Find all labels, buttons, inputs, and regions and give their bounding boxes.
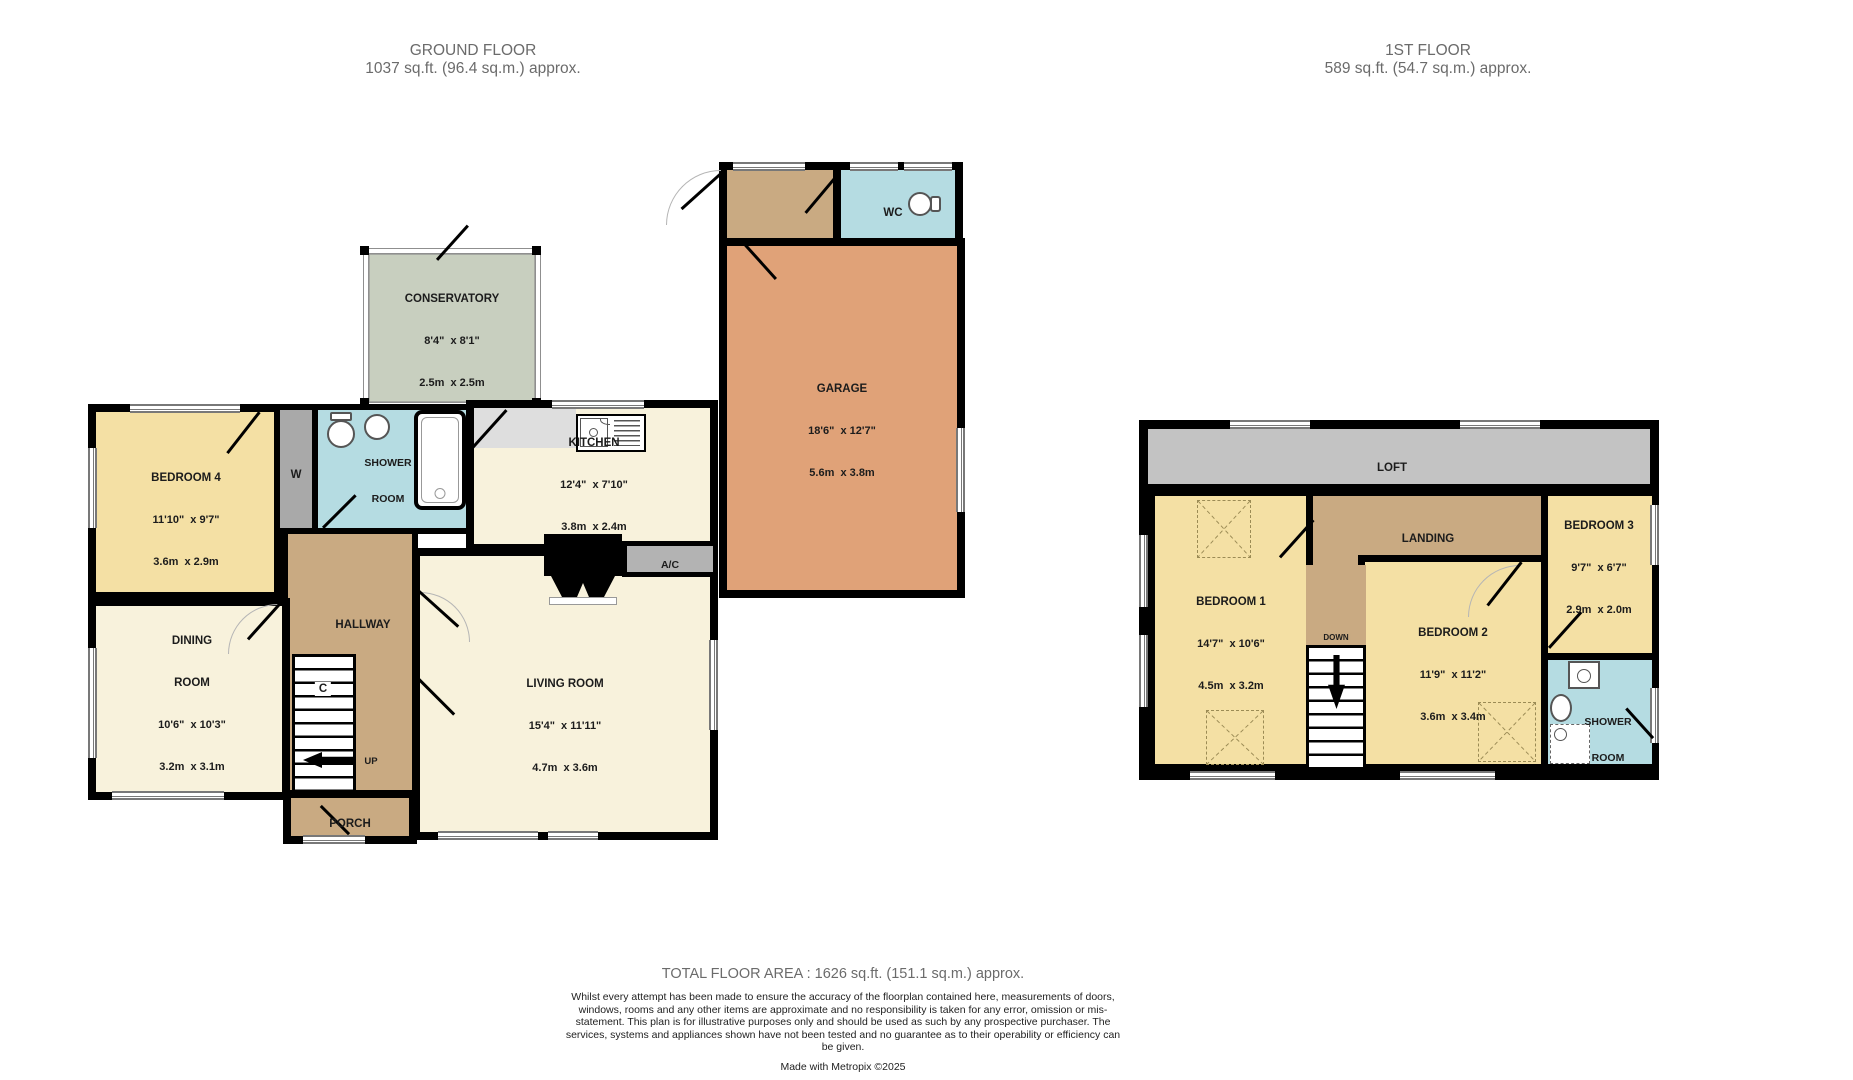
- label-landing: LANDING: [1402, 504, 1454, 560]
- first-floor-area: 589 sq.ft. (54.7 sq.m.) approx.: [1325, 60, 1532, 77]
- window: [1400, 771, 1495, 780]
- label-bedroom4: BEDROOM 4 11'10" x 9'7" 3.6m x 2.9m: [151, 443, 221, 583]
- label-shower-1f: SHOWER ROOM: [1584, 692, 1631, 776]
- label-bedroom1: BEDROOM 1 14'7" x 10'6" 4.5m x 3.2m: [1196, 567, 1266, 707]
- label-porch: PORCH: [329, 789, 371, 845]
- label-hallway: HALLWAY: [335, 590, 390, 646]
- floorplan-page: { "ground_floor": { "header_title": "GRO…: [0, 0, 1853, 1080]
- label-loft: LOFT: [1377, 433, 1407, 489]
- window: [1190, 771, 1275, 780]
- ground-floor-title: GROUND FLOOR: [410, 42, 537, 59]
- label-garage: GARAGE 18'6" x 12'7" 5.6m x 3.8m: [808, 354, 876, 494]
- label-ac: A/C: [661, 535, 679, 583]
- window: [88, 648, 97, 758]
- window: [88, 448, 97, 528]
- window: [130, 404, 240, 413]
- window: [1460, 420, 1540, 429]
- room-rear-lobby: [719, 162, 841, 246]
- total-floor-area: TOTAL FLOOR AREA : 1626 sq.ft. (151.1 sq…: [243, 966, 1443, 982]
- ground-floor-area: 1037 sq.ft. (96.4 sq.m.) approx.: [365, 60, 580, 77]
- label-bedroom3: BEDROOM 3 9'7" x 6'7" 2.9m x 2.0m: [1564, 491, 1634, 631]
- label-stairs-cupboard: C: [315, 654, 331, 710]
- toilet-icon: [908, 192, 932, 216]
- label-living: LIVING ROOM 15'4" x 11'11" 4.7m x 3.6m: [526, 649, 603, 789]
- label-bedroom2: BEDROOM 2 11'9" x 11'2" 3.6m x 3.4m: [1418, 598, 1488, 738]
- window: [1230, 420, 1310, 429]
- window: [904, 162, 952, 171]
- window: [112, 791, 224, 800]
- label-shower-gf: SHOWER ROOM: [364, 433, 411, 517]
- fireplace-hearth-stone: [549, 597, 617, 605]
- toilet-icon: [1550, 694, 1572, 722]
- label-conservatory: CONSERVATORY 8'4" x 8'1" 2.5m x 2.5m: [405, 264, 500, 404]
- credit-text: Made with Metropix ©2025: [563, 1061, 1123, 1073]
- window: [733, 162, 805, 171]
- label-stairs-down: DOWN: [1321, 615, 1350, 651]
- label-wardrobe: W: [291, 440, 302, 496]
- toilet-icon: [327, 420, 355, 448]
- storage-box-icon: [1197, 500, 1251, 558]
- window: [1139, 635, 1148, 707]
- storage-box-icon: [1206, 710, 1264, 765]
- window: [1650, 505, 1659, 565]
- label-wc: WC: [883, 178, 902, 234]
- first-floor-title: 1ST FLOOR: [1385, 42, 1471, 59]
- first-floor-header: 1ST FLOOR 589 sq.ft. (54.7 sq.m.) approx…: [1128, 42, 1728, 78]
- window: [548, 831, 598, 840]
- shower-cubicle-icon: [414, 410, 466, 510]
- label-stairs-up: UP: [364, 739, 377, 775]
- window: [1139, 535, 1148, 607]
- label-kitchen: KITCHEN 12'4" x 7'10" 3.8m x 2.4m: [560, 408, 628, 548]
- toilet-cistern-icon: [930, 196, 941, 212]
- ground-floor-header: GROUND FLOOR 1037 sq.ft. (96.4 sq.m.) ap…: [173, 42, 773, 78]
- label-dining: DINING ROOM 10'6" x 10'3" 3.2m x 3.1m: [158, 606, 226, 788]
- window: [438, 831, 538, 840]
- window: [709, 640, 718, 730]
- disclaimer-text: Whilst every attempt has been made to en…: [563, 991, 1123, 1054]
- window: [956, 428, 965, 512]
- basin-icon: [1568, 661, 1600, 689]
- window: [850, 162, 898, 171]
